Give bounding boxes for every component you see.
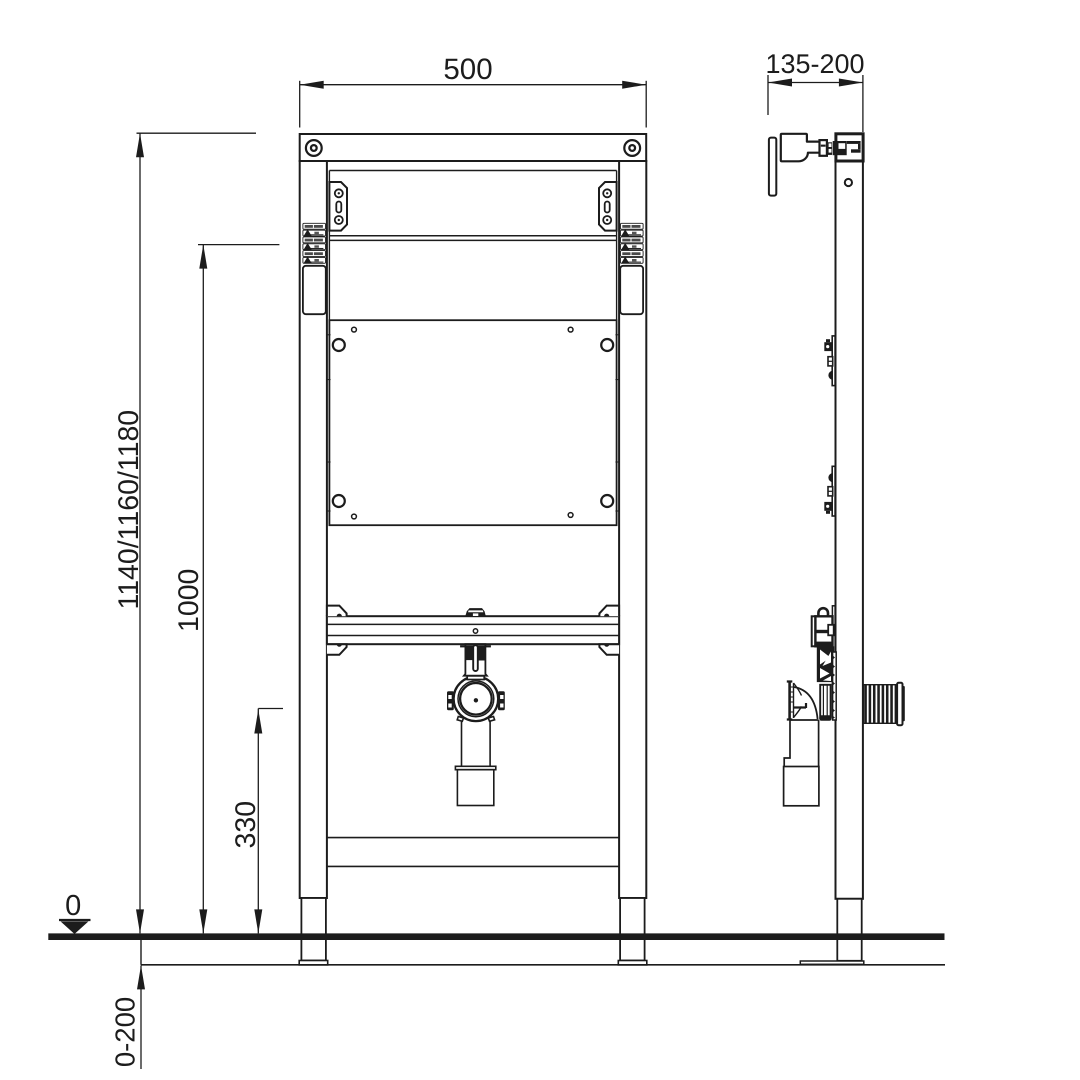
svg-text:135-200: 135-200 xyxy=(765,49,864,79)
svg-text:500: 500 xyxy=(443,53,492,86)
svg-text:1140/1160/1180: 1140/1160/1180 xyxy=(113,410,145,610)
svg-text:0: 0 xyxy=(65,890,81,922)
svg-text:0-200: 0-200 xyxy=(110,997,141,1067)
svg-text:1000: 1000 xyxy=(173,569,205,632)
svg-text:330: 330 xyxy=(230,801,262,849)
